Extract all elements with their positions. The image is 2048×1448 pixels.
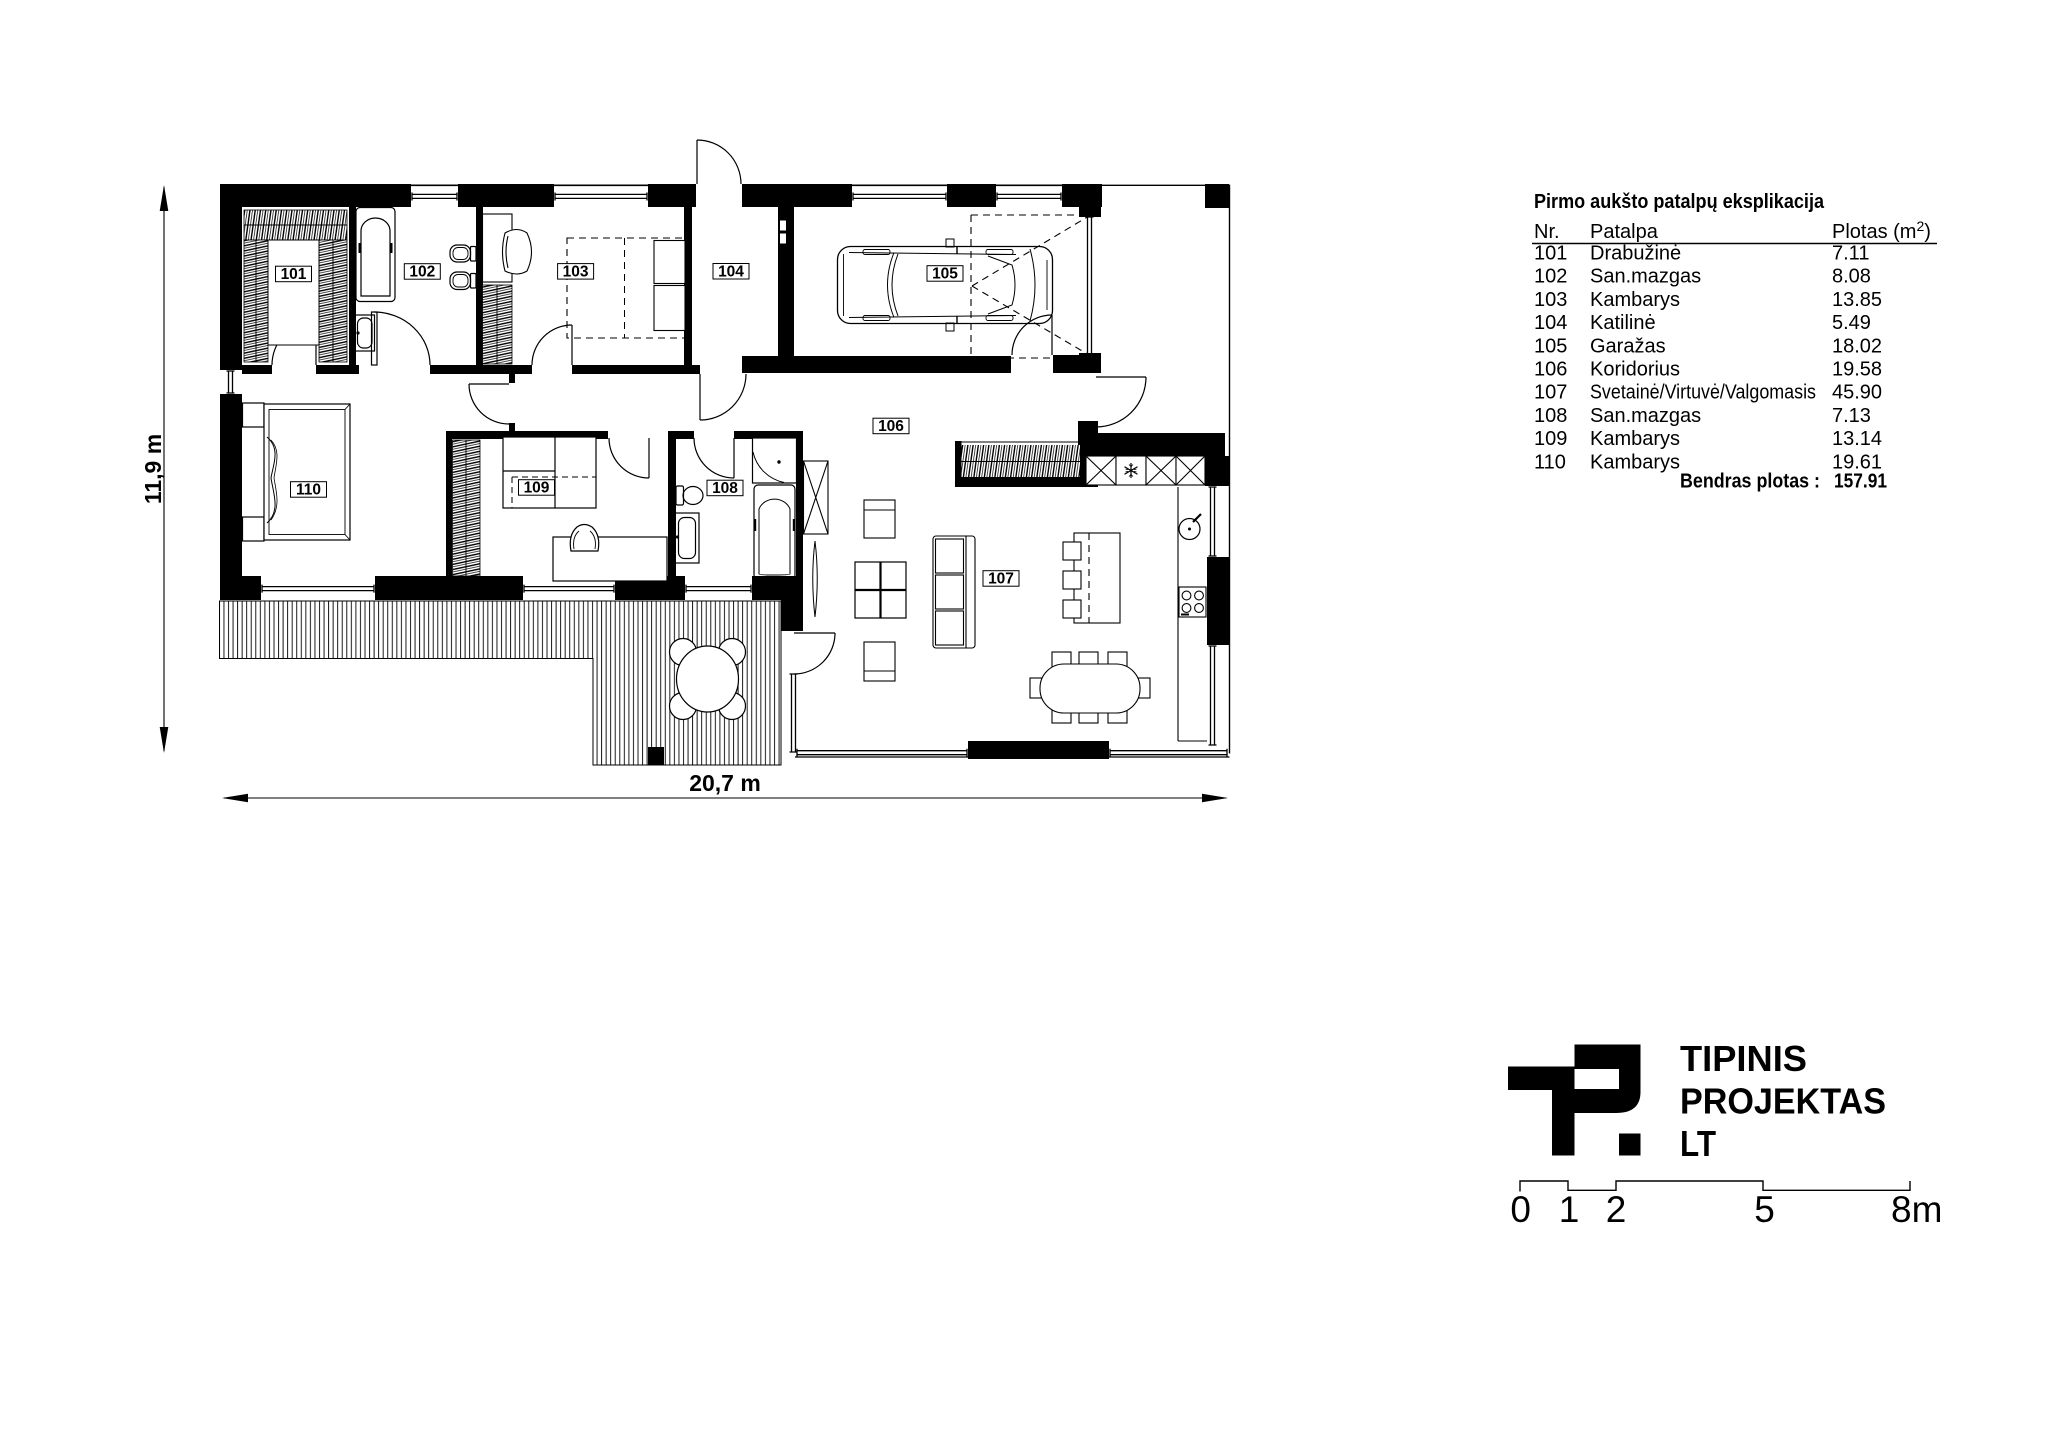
svg-text:106: 106	[1534, 359, 1567, 381]
svg-text:Patalpa: Patalpa	[1590, 221, 1659, 243]
svg-text:110: 110	[296, 482, 321, 499]
svg-text:110: 110	[1534, 451, 1566, 473]
svg-text:Bendras plotas :: Bendras plotas :	[1680, 471, 1820, 493]
svg-text:101: 101	[1534, 243, 1567, 265]
svg-text:108: 108	[712, 480, 738, 497]
svg-text:LT: LT	[1680, 1123, 1716, 1164]
svg-text:5: 5	[1754, 1189, 1775, 1230]
svg-text:Kambarys: Kambarys	[1590, 289, 1680, 311]
svg-text:105: 105	[932, 266, 958, 283]
svg-text:Katilinė: Katilinė	[1590, 312, 1656, 334]
svg-text:Nr.: Nr.	[1534, 221, 1560, 243]
svg-text:Svetainė/Virtuvė/Valgomasis: Svetainė/Virtuvė/Valgomasis	[1590, 382, 1816, 404]
svg-text:5.49: 5.49	[1832, 312, 1871, 334]
svg-text:20,7 m: 20,7 m	[689, 770, 761, 796]
svg-text:104: 104	[1534, 312, 1567, 334]
svg-text:103: 103	[1534, 289, 1567, 311]
svg-text:Drabužinė: Drabužinė	[1590, 243, 1681, 265]
svg-text:8m: 8m	[1891, 1189, 1942, 1230]
svg-text:107: 107	[988, 571, 1014, 588]
svg-text:Kambarys: Kambarys	[1590, 451, 1680, 473]
svg-text:7.11: 7.11	[1832, 243, 1869, 265]
svg-text:TIPINIS: TIPINIS	[1680, 1038, 1807, 1079]
svg-text:8.08: 8.08	[1832, 266, 1871, 288]
svg-text:19.58: 19.58	[1832, 359, 1882, 381]
svg-text:PROJEKTAS: PROJEKTAS	[1680, 1080, 1886, 1121]
svg-text:7.13: 7.13	[1832, 405, 1871, 427]
svg-text:18.02: 18.02	[1832, 335, 1882, 357]
svg-text:2: 2	[1606, 1189, 1627, 1230]
svg-text:109: 109	[1534, 428, 1567, 450]
svg-text:105: 105	[1534, 335, 1567, 357]
svg-text:102: 102	[409, 264, 435, 281]
svg-text:San.mazgas: San.mazgas	[1590, 405, 1701, 427]
svg-text:13.85: 13.85	[1832, 289, 1882, 311]
svg-text:108: 108	[1534, 405, 1567, 427]
svg-text:45.90: 45.90	[1832, 382, 1882, 404]
svg-text:104: 104	[718, 263, 744, 280]
svg-text:Koridorius: Koridorius	[1590, 359, 1680, 381]
svg-text:San.mazgas: San.mazgas	[1590, 266, 1701, 288]
svg-text:103: 103	[563, 263, 589, 280]
svg-text:157.91: 157.91	[1834, 471, 1887, 493]
svg-text:102: 102	[1534, 266, 1567, 288]
svg-text:Garažas: Garažas	[1590, 335, 1666, 357]
svg-text:109: 109	[524, 480, 550, 497]
svg-text:13.14: 13.14	[1832, 428, 1882, 450]
svg-text:Kambarys: Kambarys	[1590, 428, 1680, 450]
svg-text:Plotas (m2): Plotas (m2)	[1832, 218, 1931, 243]
svg-text:107: 107	[1534, 382, 1567, 404]
svg-text:101: 101	[281, 266, 307, 283]
svg-text:1: 1	[1559, 1189, 1580, 1230]
svg-text:11,9 m: 11,9 m	[140, 434, 166, 504]
svg-text:Pirmo aukšto patalpų eksplikac: Pirmo aukšto patalpų eksplikacija	[1534, 191, 1825, 213]
svg-text:106: 106	[878, 418, 904, 435]
svg-text:0: 0	[1510, 1189, 1531, 1230]
